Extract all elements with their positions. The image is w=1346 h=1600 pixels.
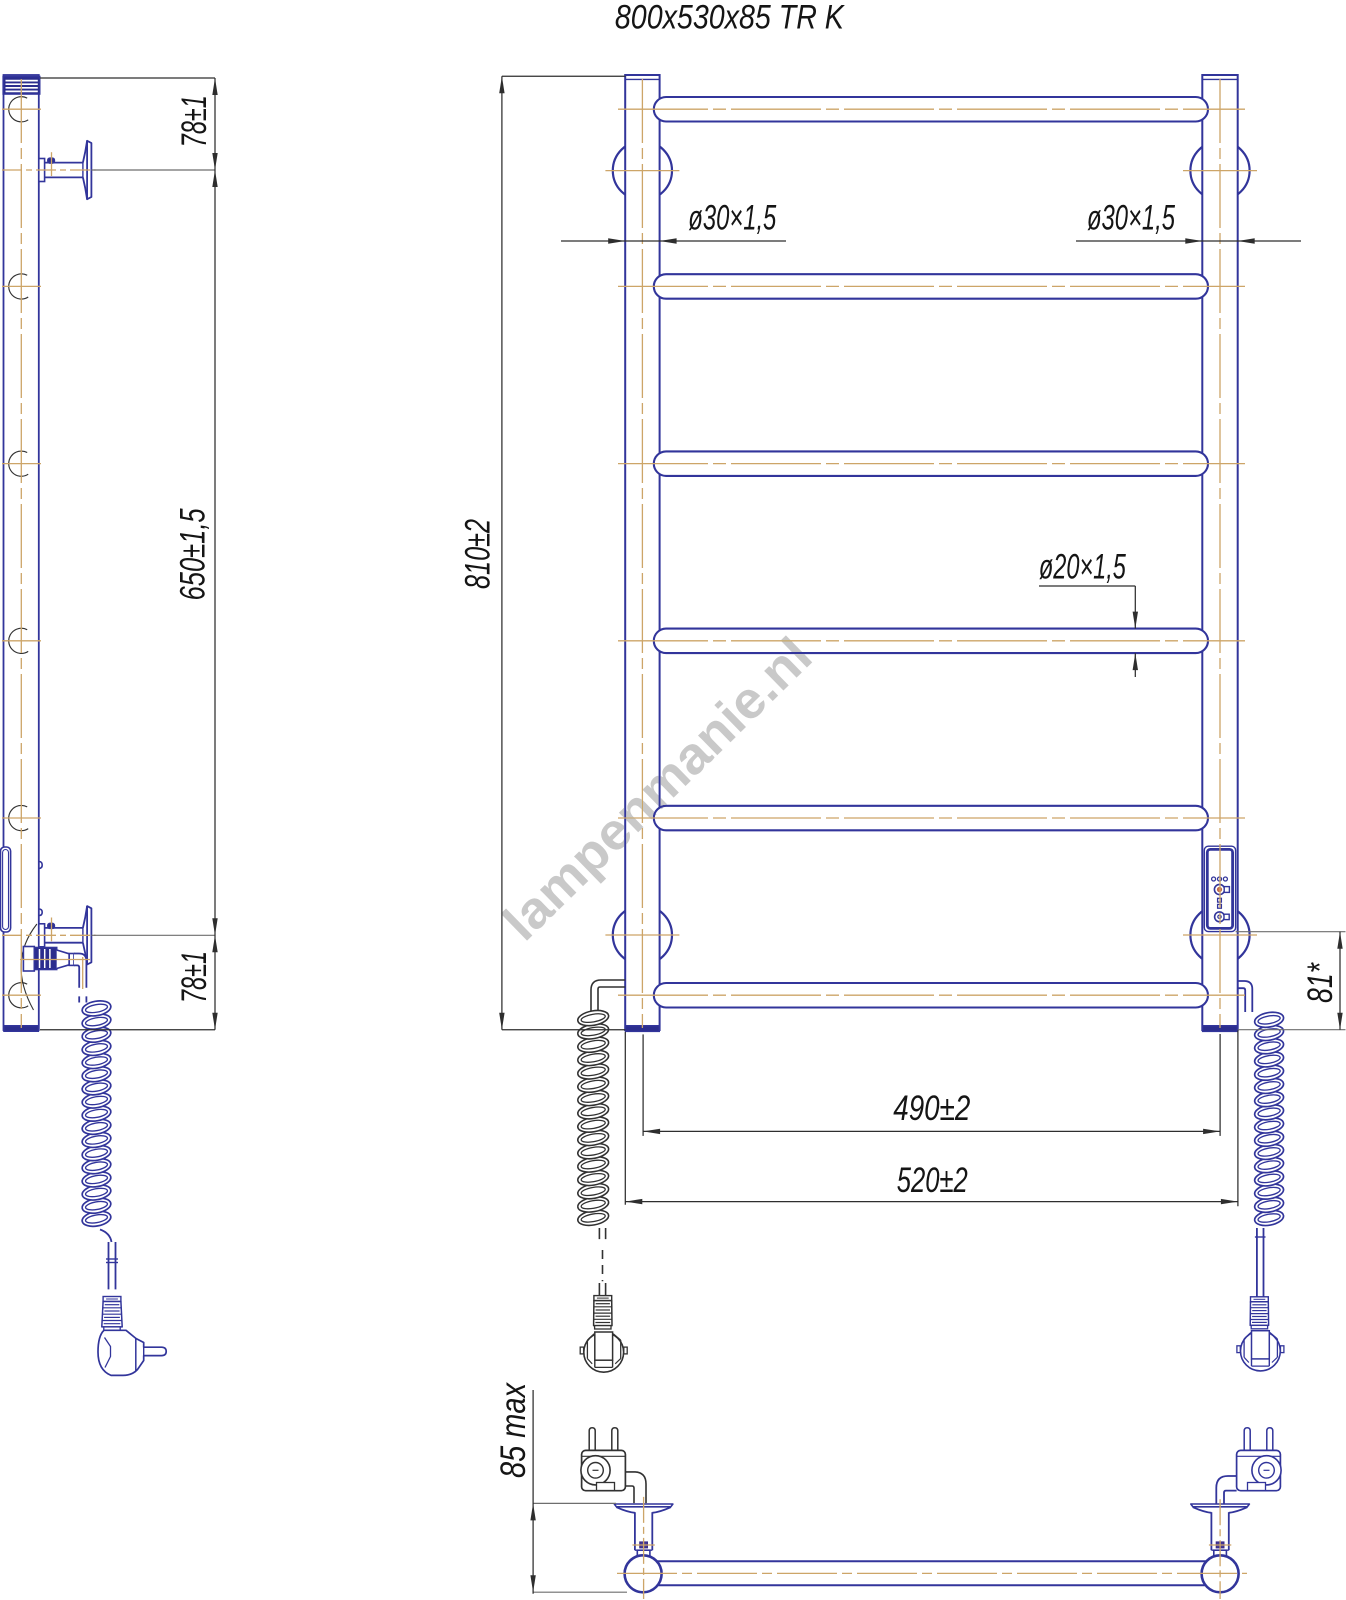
svg-text:ø30×1,5: ø30×1,5 bbox=[1087, 199, 1175, 238]
svg-text:81*: 81* bbox=[1301, 962, 1340, 1003]
svg-text:ø20×1,5: ø20×1,5 bbox=[1039, 548, 1126, 587]
svg-text:650±1,5: 650±1,5 bbox=[174, 508, 213, 600]
svg-text:78±1: 78±1 bbox=[175, 951, 214, 1003]
svg-text:810±2: 810±2 bbox=[459, 519, 498, 589]
svg-text:490±2: 490±2 bbox=[893, 1089, 970, 1128]
svg-text:85 max: 85 max bbox=[494, 1382, 533, 1478]
svg-text:520±2: 520±2 bbox=[897, 1161, 968, 1200]
svg-text:ø30×1,5: ø30×1,5 bbox=[688, 199, 776, 238]
svg-text:800x530x85 TR K: 800x530x85 TR K bbox=[615, 0, 845, 37]
svg-text:78±1: 78±1 bbox=[175, 95, 214, 147]
